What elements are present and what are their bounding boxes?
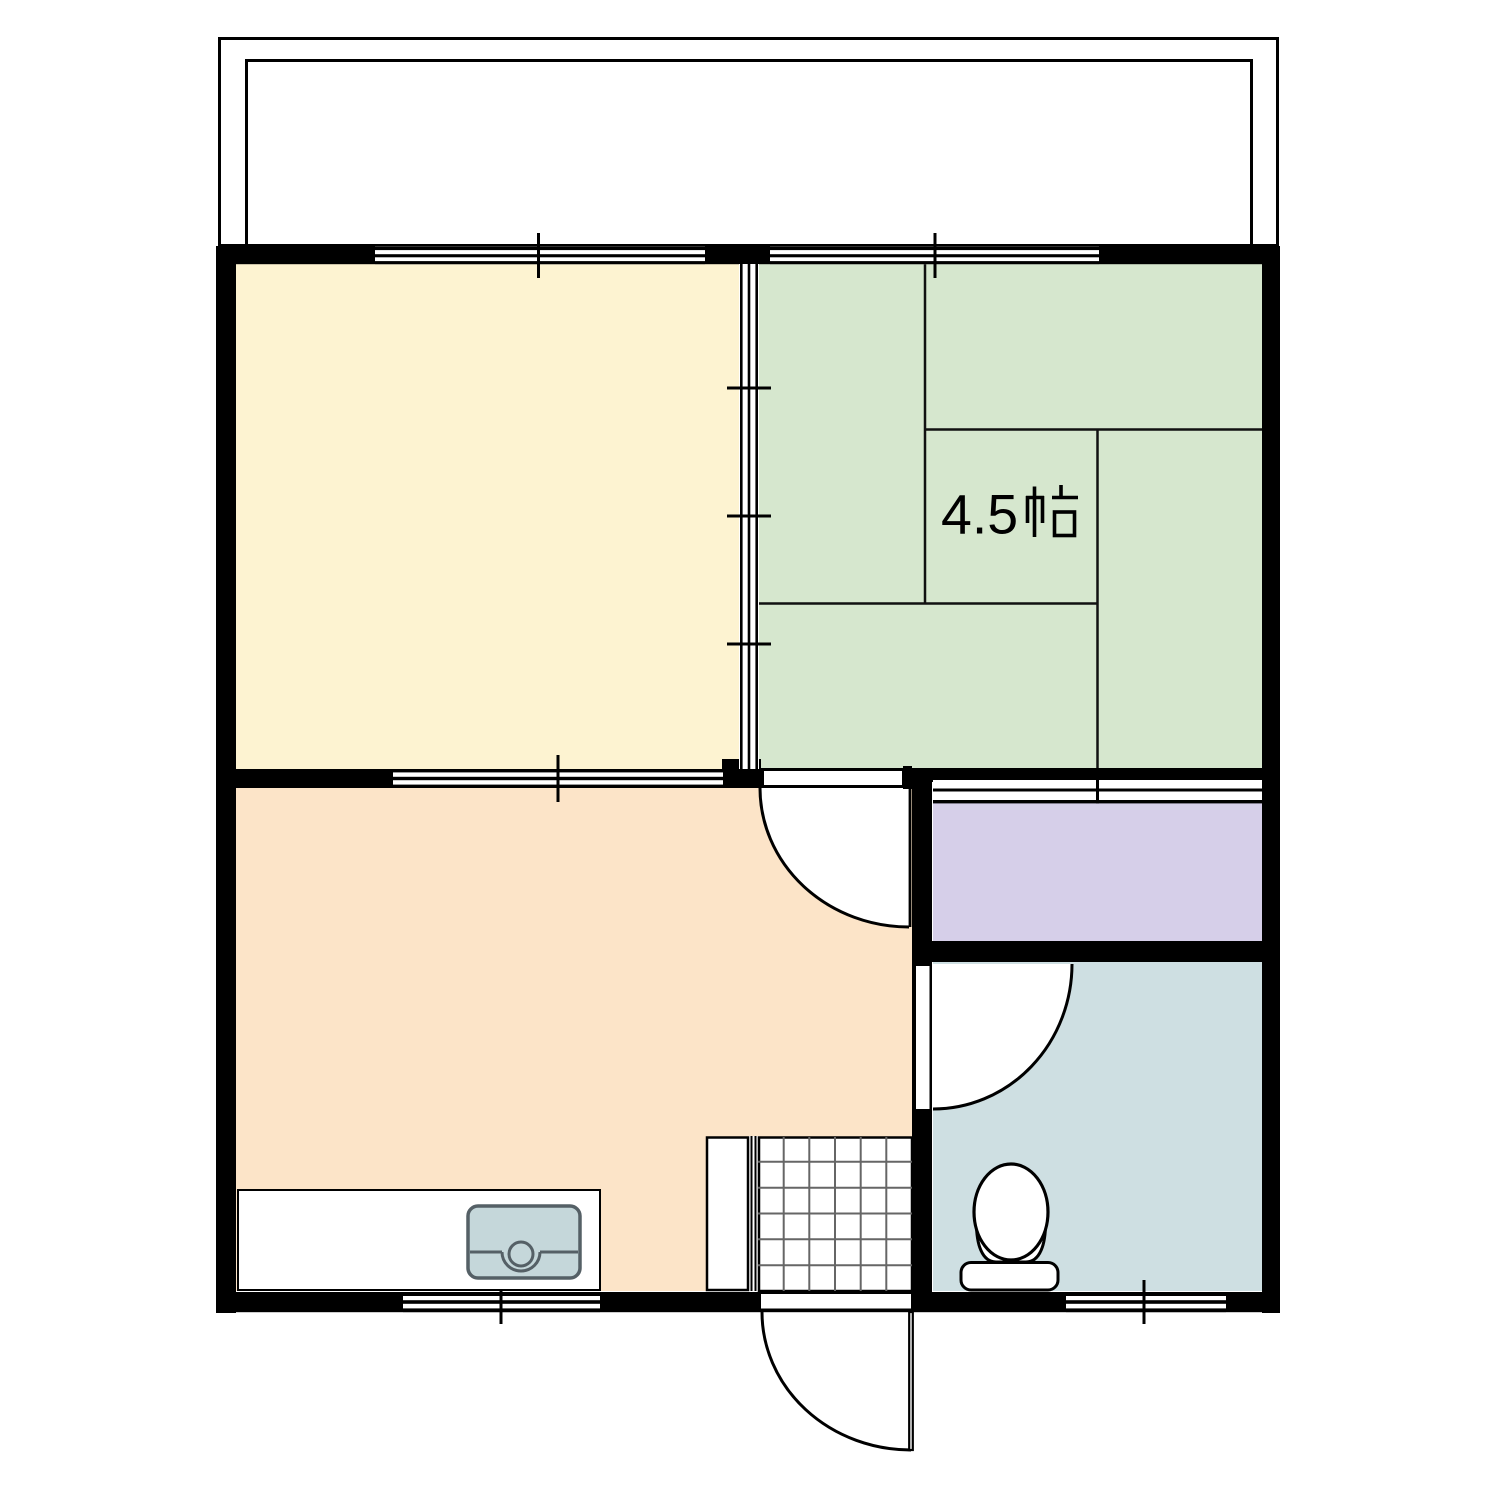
svg-text:4.5: 4.5: [941, 484, 1018, 546]
